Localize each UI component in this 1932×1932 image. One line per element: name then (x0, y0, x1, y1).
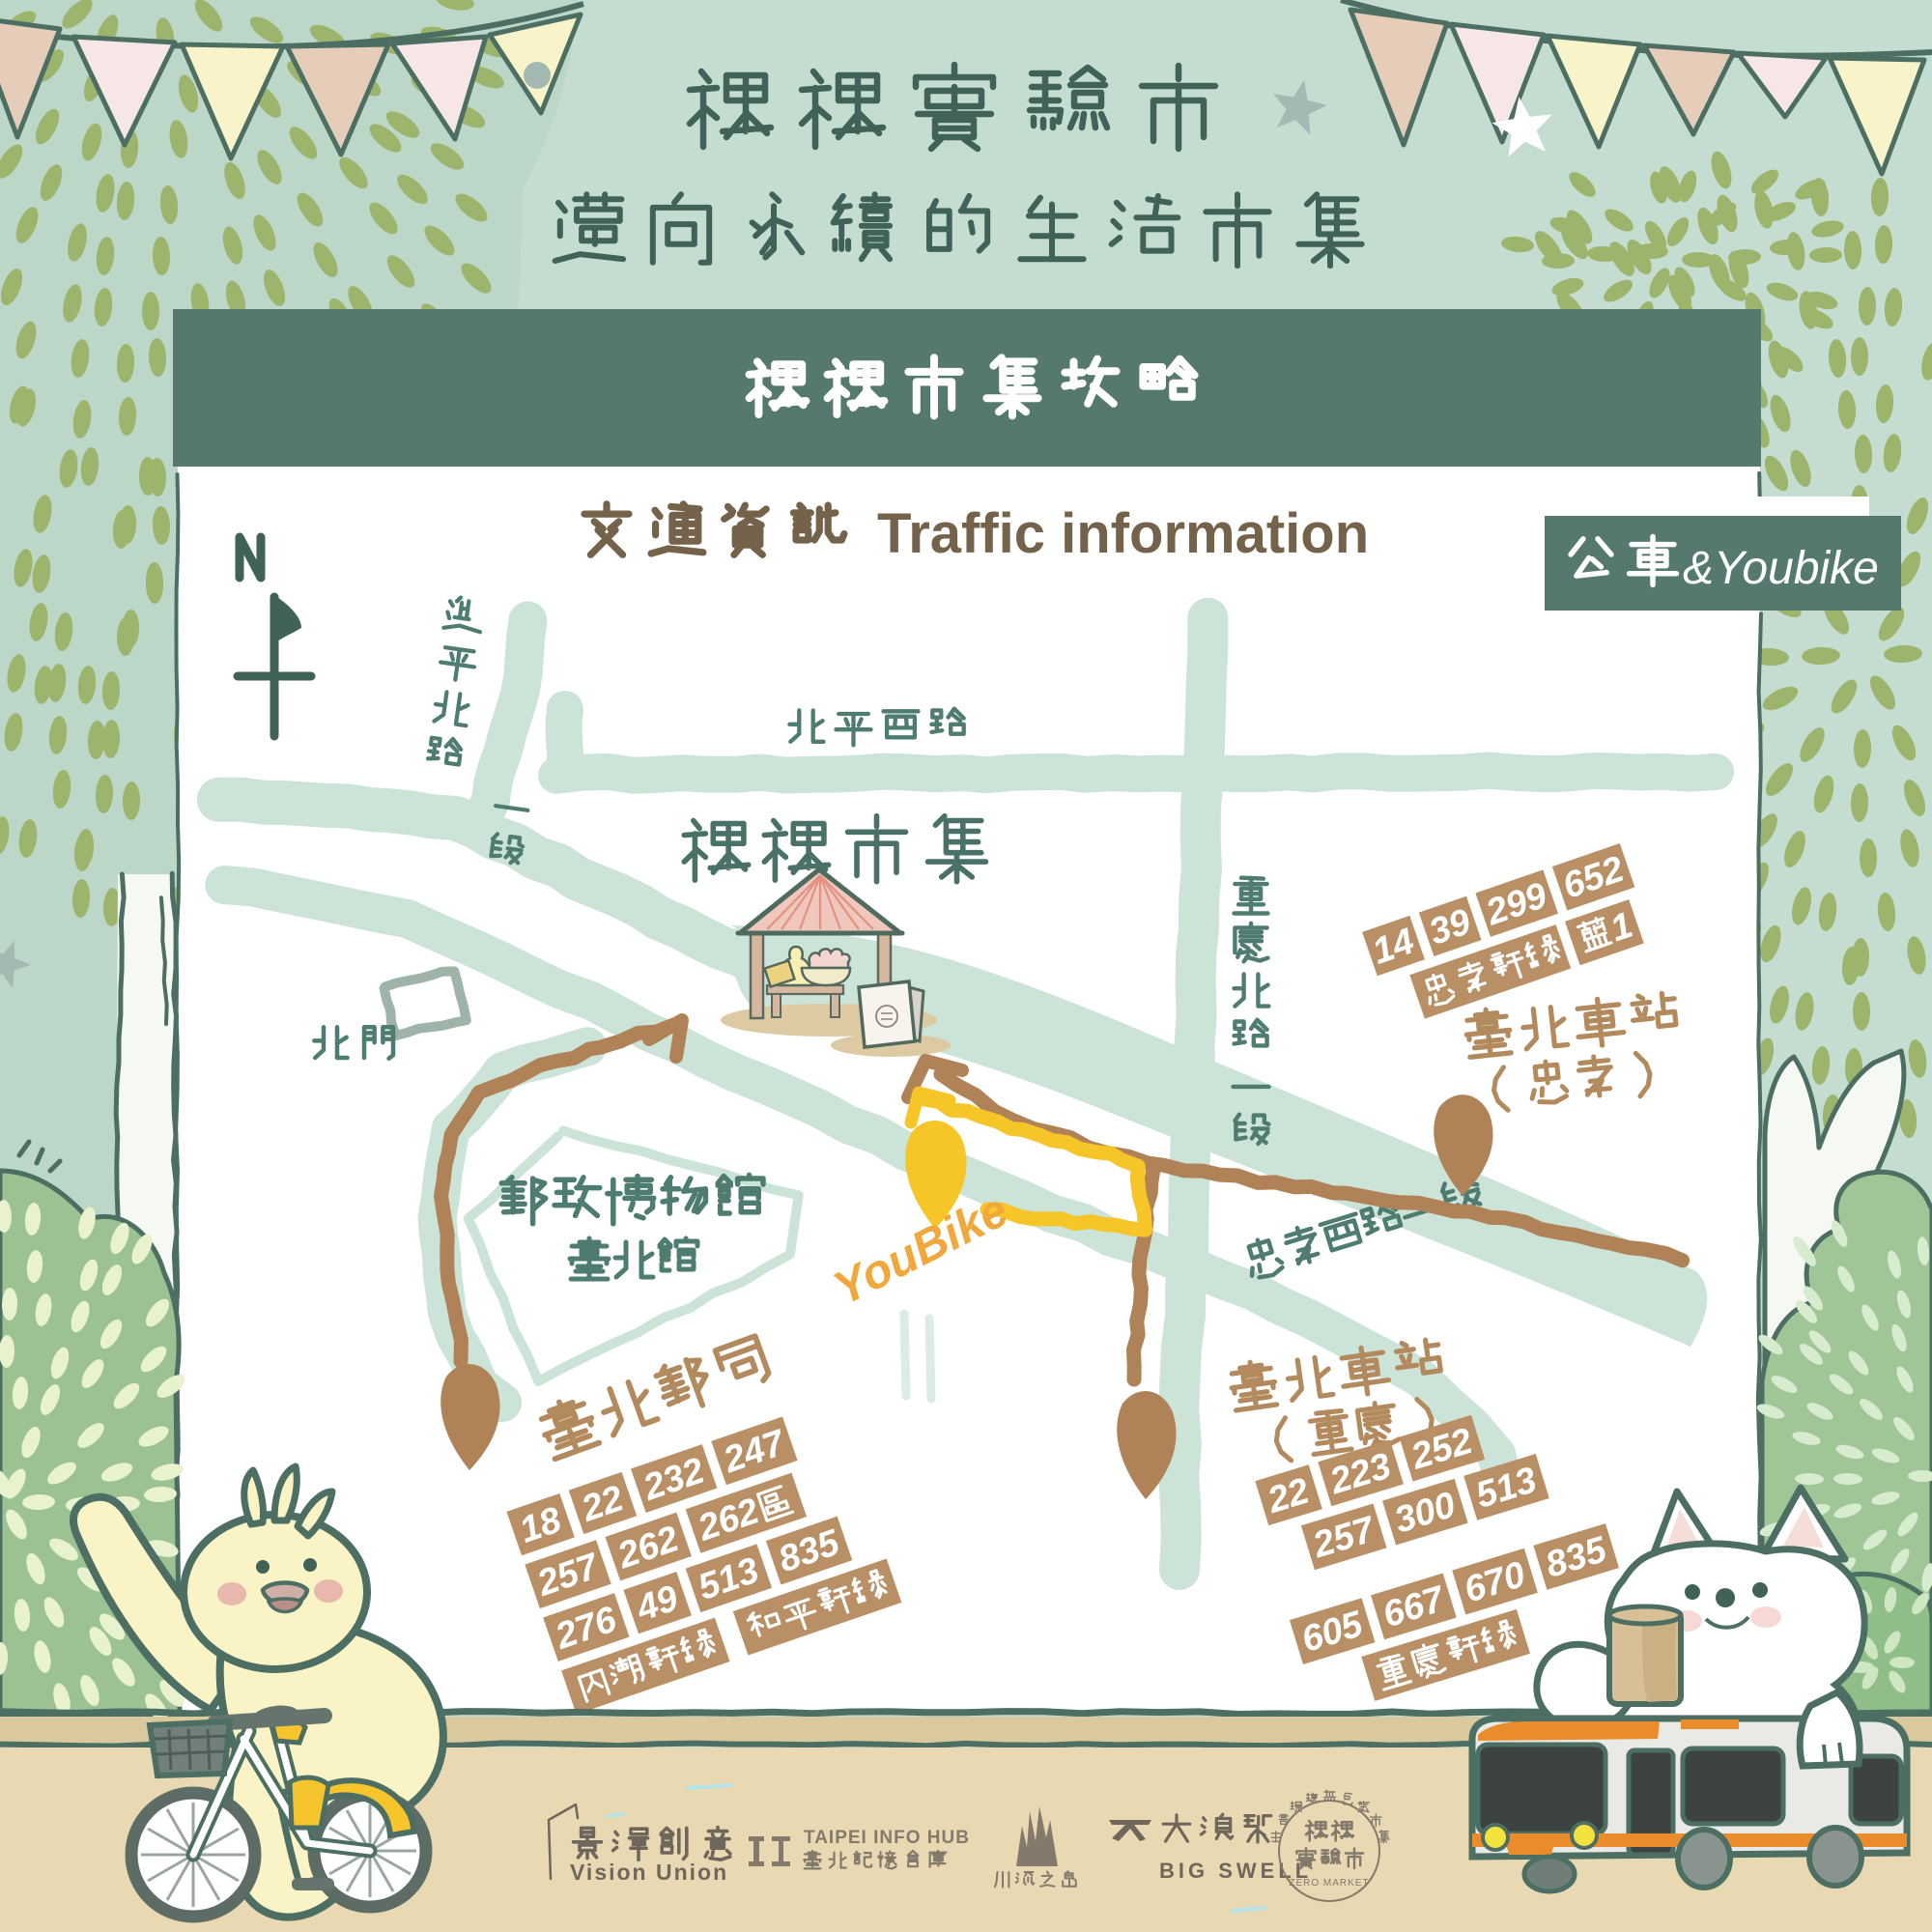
svg-text:TAIPEI INFO HUB: TAIPEI INFO HUB (804, 1828, 970, 1848)
svg-text:Traffic information: Traffic information (877, 502, 1369, 565)
svg-text:Vision Union: Vision Union (570, 1860, 728, 1885)
svg-text:ZERO MARKET: ZERO MARKET (1289, 1878, 1369, 1889)
svg-text:&Youbike: &Youbike (1683, 543, 1879, 594)
